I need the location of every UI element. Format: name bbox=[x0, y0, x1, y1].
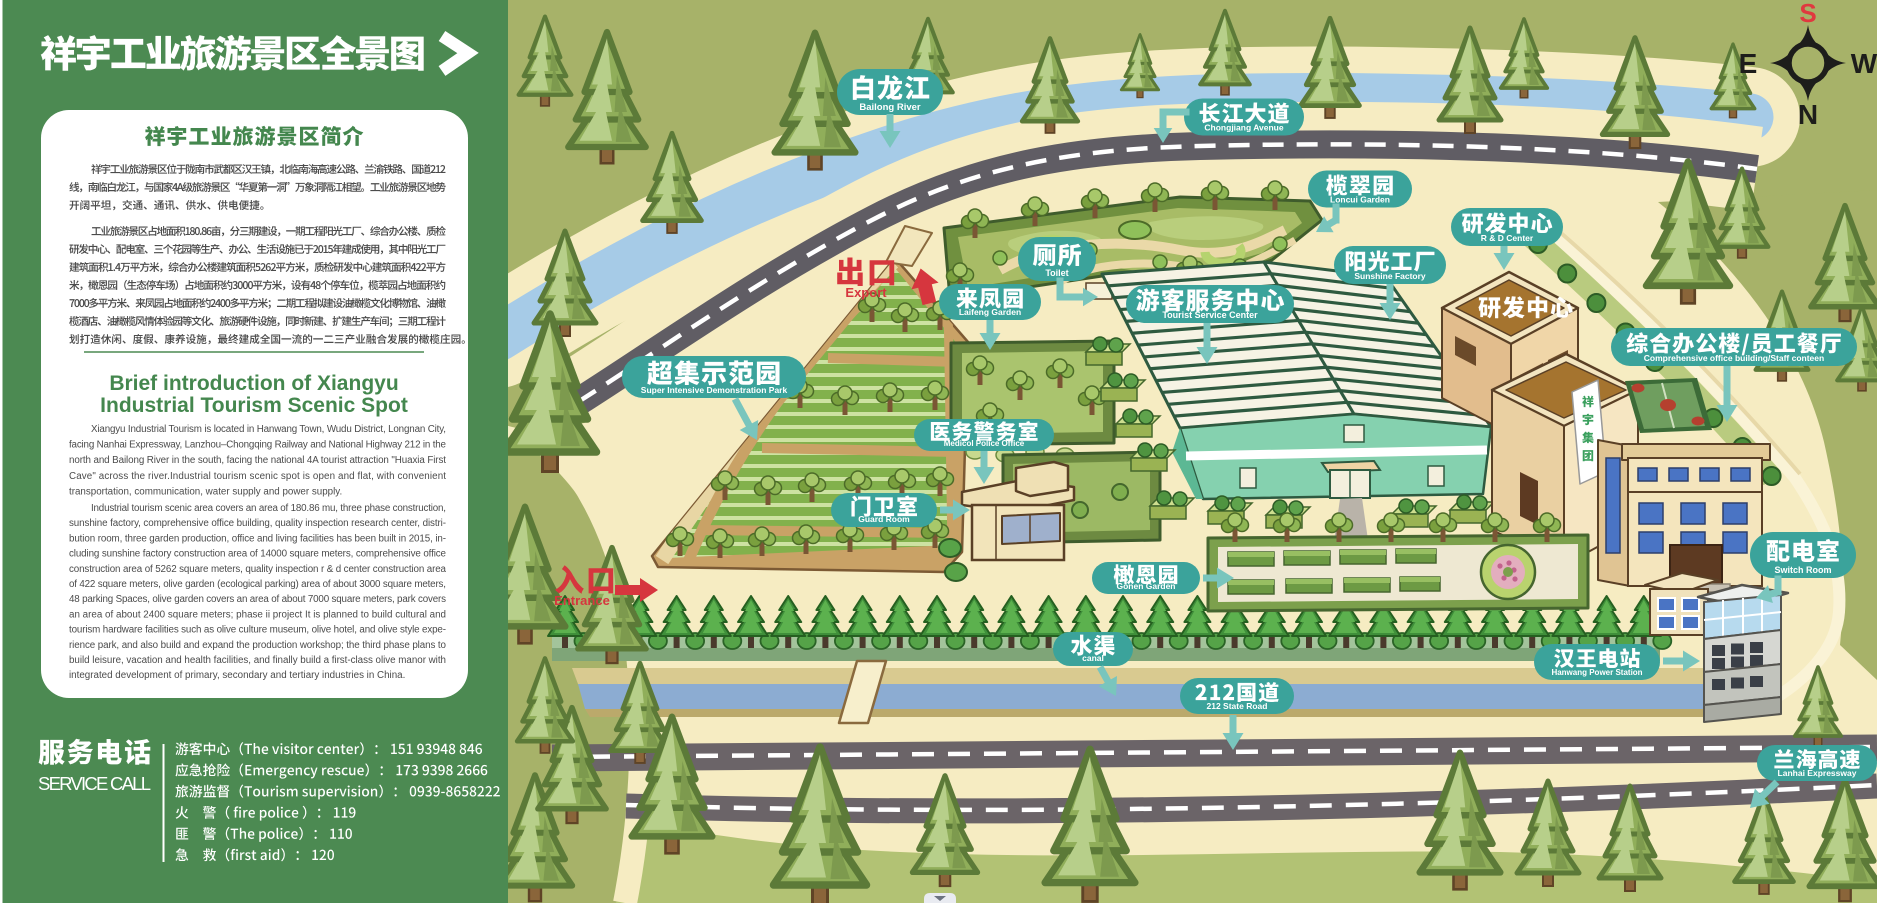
svg-text:Super Intensive Demonstration: Super Intensive Demonstration Park bbox=[641, 385, 788, 395]
svg-text:212 State Road: 212 State Road bbox=[1207, 701, 1268, 711]
svg-text:Brief introduction of Xiangyu: Brief introduction of Xiangyu bbox=[109, 372, 398, 395]
svg-text:Loncui Garden: Loncui Garden bbox=[1330, 195, 1390, 205]
svg-text:sunshine factory, comprehensiv: sunshine factory, comprehensive office b… bbox=[69, 518, 446, 529]
svg-text:Bailong River: Bailong River bbox=[859, 102, 921, 113]
svg-text:transportation, communication,: transportation, communication, water sup… bbox=[69, 486, 342, 497]
svg-text:Toilet: Toilet bbox=[1045, 268, 1068, 278]
svg-text:Sunshine Factory: Sunshine Factory bbox=[1354, 271, 1426, 281]
svg-text:Industrial tourism scenic area: Industrial tourism scenic area covers an… bbox=[91, 503, 446, 514]
svg-text:Export: Export bbox=[845, 285, 887, 300]
svg-text:of 422 square meters, olive ga: of 422 square meters, olive garden (ecol… bbox=[69, 579, 446, 590]
svg-text:Medicol Police Office: Medicol Police Office bbox=[944, 439, 1025, 448]
svg-text:canal: canal bbox=[1082, 653, 1104, 663]
svg-text:R & D Center: R & D Center bbox=[1481, 233, 1534, 243]
svg-text:integrated development of prim: integrated development of primary, secon… bbox=[69, 670, 405, 681]
svg-text:north and Bailong River in the: north and Bailong River in the south, fa… bbox=[69, 455, 446, 466]
svg-text:tourism hardware facilities su: tourism hardware facilities such as oliv… bbox=[69, 625, 446, 636]
svg-text:Entrance: Entrance bbox=[554, 593, 610, 608]
svg-text:48 parking Spaces, olive garde: 48 parking Spaces, olive garden covers a… bbox=[69, 594, 446, 605]
svg-text:SERVICE CALL: SERVICE CALL bbox=[38, 773, 151, 794]
svg-text:Xiangyu Industrial Tourism is: Xiangyu Industrial Tourism is located in… bbox=[91, 424, 446, 435]
svg-text:Chongjiang Avenue: Chongjiang Avenue bbox=[1204, 123, 1283, 133]
svg-text:W: W bbox=[1851, 48, 1877, 79]
svg-text:E: E bbox=[1739, 48, 1758, 79]
svg-text:Guard Room: Guard Room bbox=[858, 514, 910, 524]
svg-text:Tourist Service Center: Tourist Service Center bbox=[1162, 310, 1258, 320]
svg-text:Industrial Tourism Scenic Spot: Industrial Tourism Scenic Spot bbox=[100, 394, 408, 417]
svg-text:Laifeng Garden: Laifeng Garden bbox=[959, 307, 1021, 317]
svg-text:Hanwang Power Station: Hanwang Power Station bbox=[1551, 668, 1642, 677]
svg-text:Cave" across the river.Industr: Cave" across the river.Industrial touris… bbox=[69, 471, 446, 482]
svg-text:construction area of 5262 squa: construction area of 5262 square meters,… bbox=[69, 564, 447, 575]
svg-text:N: N bbox=[1798, 99, 1818, 130]
svg-text:cluding sunshine factory const: cluding sunshine factory construction ar… bbox=[69, 549, 447, 560]
svg-text:S: S bbox=[1799, 0, 1816, 28]
svg-text:an area of about 2400 square m: an area of about 2400 square meters; pha… bbox=[69, 609, 446, 620]
svg-text:facing Nanhai Expressway, Lanz: facing Nanhai Expressway, Lanzhou–Chongq… bbox=[69, 440, 447, 451]
svg-text:Comprehensive office building/: Comprehensive office building/Staff cont… bbox=[1644, 353, 1824, 363]
svg-text:Lanhai Expressway: Lanhai Expressway bbox=[1778, 768, 1857, 778]
svg-text:Switch Room: Switch Room bbox=[1774, 565, 1831, 575]
svg-text:bution room, three garden prod: bution room, three garden production, of… bbox=[69, 533, 446, 544]
svg-text:Gonen Garden: Gonen Garden bbox=[1116, 581, 1175, 591]
svg-text:build leisure, vacation and he: build leisure, vacation and health facil… bbox=[69, 655, 446, 666]
svg-text:rience park, and also build an: rience park, and also build and expand t… bbox=[69, 640, 447, 651]
